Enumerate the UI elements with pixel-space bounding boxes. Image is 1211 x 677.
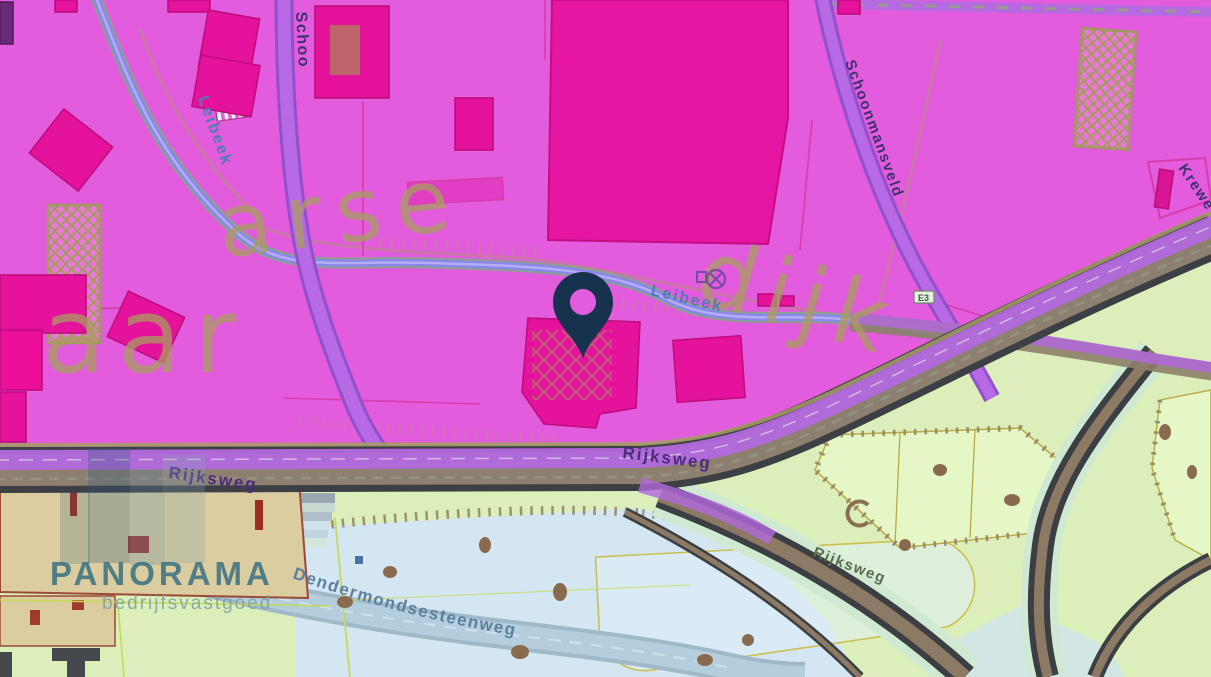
watermark-brand: PANORAMA	[50, 555, 274, 592]
ghost-label-aar: aar	[42, 275, 248, 397]
street-label-schoo: Schoo	[292, 11, 312, 68]
map-viewport[interactable]: aar arse dijk E3 Leibeek Leibeek Schoo S…	[0, 0, 1211, 677]
watermark-tagline: bedrijfsvastgoed	[102, 593, 272, 614]
road-badge-e3-text: E3	[918, 293, 929, 303]
road-badge-e3: E3	[914, 291, 934, 303]
zoning-map-canvas[interactable]: aar arse dijk E3 Leibeek Leibeek Schoo S…	[0, 0, 1211, 677]
